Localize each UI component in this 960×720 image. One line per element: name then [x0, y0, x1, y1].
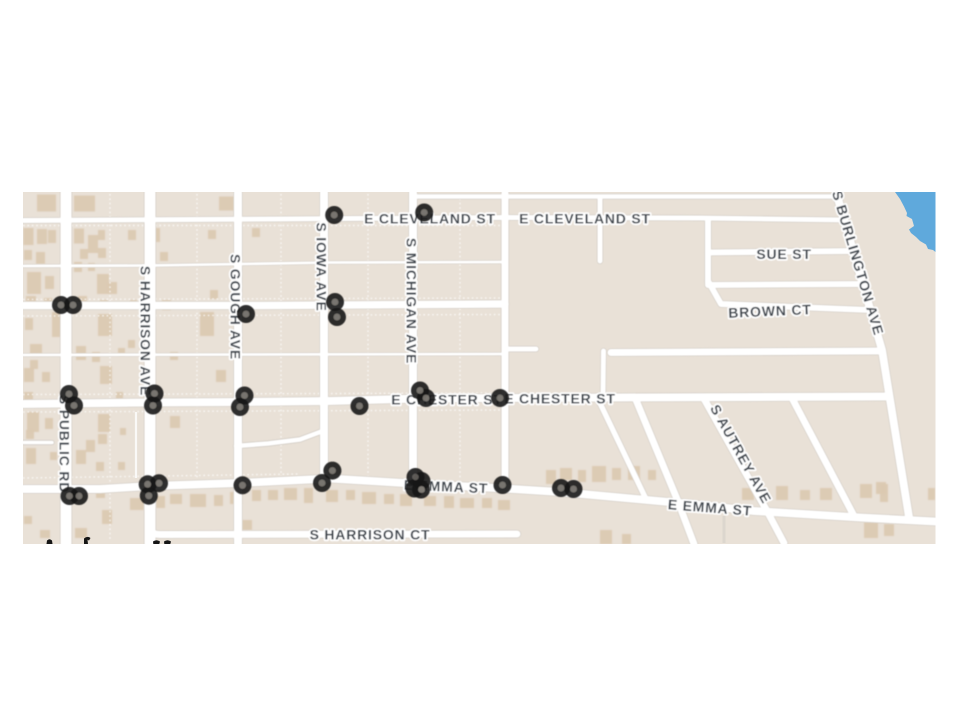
svg-text:S MICHIGAN AVE: S MICHIGAN AVE	[404, 238, 420, 364]
svg-text:SUE ST: SUE ST	[756, 246, 811, 262]
svg-text:E CLEVELAND ST: E CLEVELAND ST	[519, 211, 651, 227]
svg-text:E CHESTER ST: E CHESTER ST	[504, 391, 616, 407]
svg-text:E CHESTER ST: E CHESTER ST	[391, 392, 503, 408]
svg-text:S HARRISON CT: S HARRISON CT	[310, 527, 431, 543]
svg-text:S HARRISON AVE: S HARRISON AVE	[138, 266, 154, 396]
